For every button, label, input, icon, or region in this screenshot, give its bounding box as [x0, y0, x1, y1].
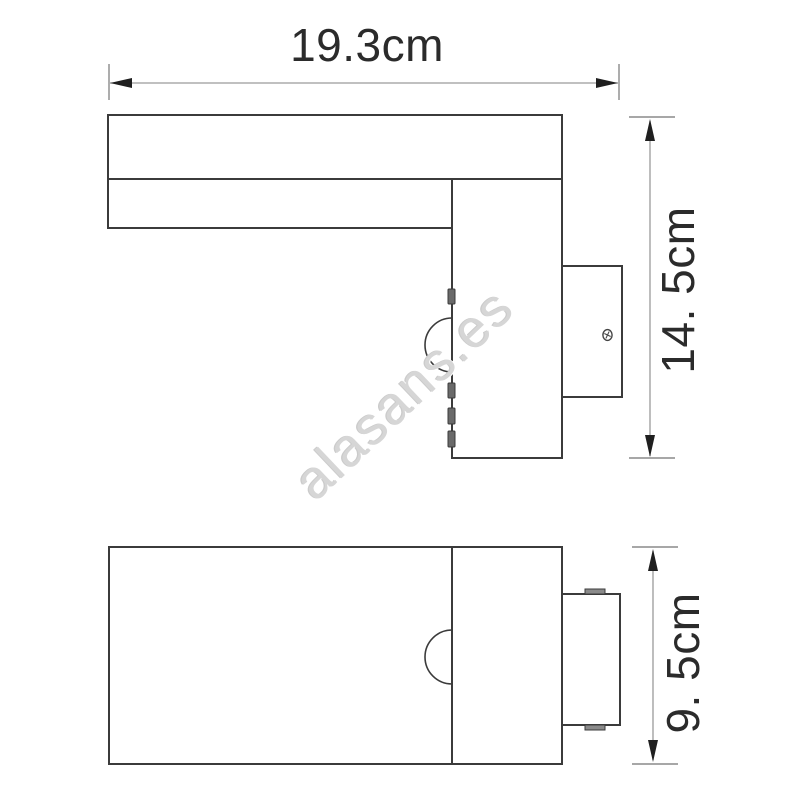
arrow-right-icon — [596, 78, 618, 88]
lamp-arm-outline — [108, 179, 452, 228]
top-view — [109, 547, 620, 764]
wall-bracket-top-outline — [562, 594, 620, 725]
height-dimension-label: 14. 5cm — [655, 206, 701, 373]
arrow-left-icon — [110, 78, 132, 88]
clip-tab — [448, 289, 455, 304]
lamp-body-top-outline — [109, 547, 562, 764]
arrow-up-icon — [645, 119, 655, 141]
arrow-up-icon — [648, 549, 658, 571]
bracket-tab — [585, 725, 605, 730]
top-view-bracket-tabs — [585, 589, 605, 730]
lamp-head-outline — [108, 115, 562, 179]
clip-tab — [448, 408, 455, 424]
clip-tab — [448, 431, 455, 447]
bracket-tab — [585, 589, 605, 594]
motion-sensor-dome — [425, 630, 452, 684]
arrow-down-icon — [648, 740, 658, 762]
arrow-down-icon — [645, 435, 655, 457]
technical-drawing-canvas: 19.3cm 14. 5cm 9. 5cm alasans.es — [0, 0, 800, 800]
wall-bracket-outline — [562, 266, 622, 397]
screw-icon — [603, 330, 613, 341]
width-dimension-label: 19.3cm — [290, 22, 444, 68]
depth-dimension-label: 9. 5cm — [660, 592, 706, 733]
